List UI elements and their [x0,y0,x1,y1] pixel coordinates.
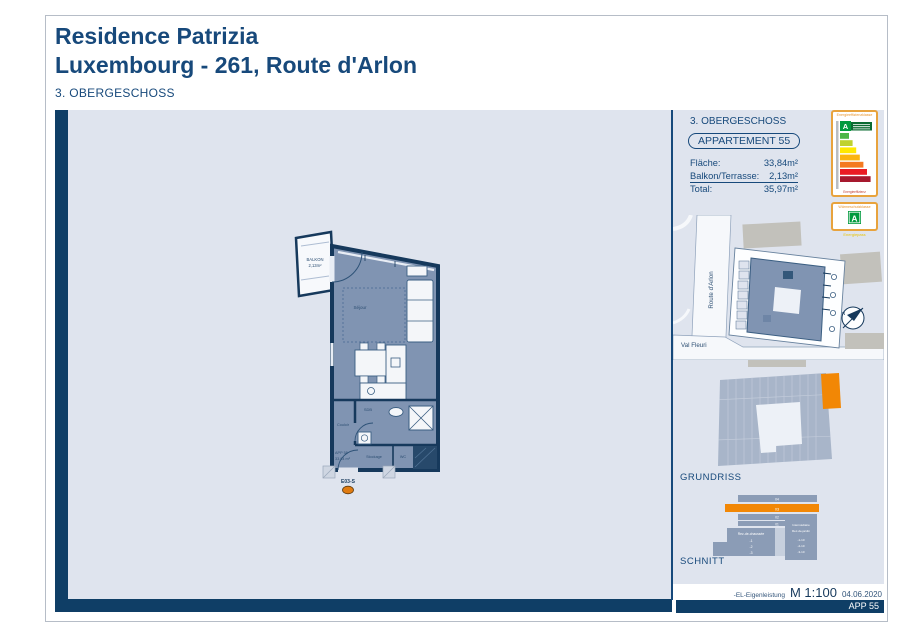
footer-bar: APP 55 [676,600,884,613]
balkon-label: BALKON [307,257,324,262]
room-label-sdb: SDB [364,407,373,412]
entrance-label: E03-S [341,479,356,485]
technical-shaft [413,446,437,469]
site-building [747,258,831,341]
sidebar-floor-label: 3. OBERGESCHOSS [690,116,786,127]
room-label-couloir: Couloir [337,423,350,427]
wall-section-mark [383,466,395,478]
energy-class-badge: A [840,121,872,131]
area-row: Fläche: 33,84m² [690,157,798,170]
street-label-vertical: Route d'Arlon [708,271,715,309]
section-right-row: -3-10 [797,550,804,554]
svg-text:A: A [843,122,849,131]
energy-scale-bars [840,133,871,182]
grundriss-label: GRUNDRISS [680,472,742,483]
area-label: Balkon/Terrasse: [690,170,759,183]
section-right-header: Rez-de-jardin [792,529,810,533]
north-label: N [842,311,845,316]
scale-label: M 1:100 [790,585,837,600]
title-line1: Residence Patrizia [55,22,655,51]
area-row: Total: 35,97m² [690,183,798,196]
site-map: Route d'Arlon Val Fleuri [673,215,884,360]
section-left-row: -2 [749,545,752,549]
section-left-header: Rez-de-chaussée [738,532,765,536]
map-edge-building [748,360,806,367]
floor-subtitle: 3. OBERGESCHOSS [55,86,175,100]
plan-sheet: Residence Patrizia Luxembourg - 261, Rou… [0,0,900,636]
area-label: Total: [690,183,712,196]
area-value: 35,97m² [764,183,798,196]
area-row: Balkon/Terrasse: 2,13m² [690,170,798,184]
energy-axis-bar [836,121,839,189]
apartment-highlight [821,373,841,409]
basin [389,408,403,417]
energy-label: Energieeffizienzklasse A Energieeffizien… [831,110,878,197]
area-value: 33,84m² [764,157,798,170]
schnitt-label: SCHNITT [680,556,725,567]
floor-number: 04 [775,498,779,502]
compass-icon: N [842,307,864,329]
section-left-row: -1 [749,539,752,543]
section-right-header: Intermédiaire [792,523,810,527]
section-right-row: -2-10 [797,544,804,548]
balcony: BALKON 2,13m² [296,232,334,296]
room-label-sejour: Séjour [353,305,367,310]
schnitt-graphic: 04 03 02 01 Rez-de-chaussée -1 -2 -3 Int… [673,488,884,560]
room-label-wc: WC [400,455,407,459]
section-core [775,528,785,556]
grundriss-graphic [673,360,884,475]
date-label: 04.06.2020 [842,590,882,599]
footer-note: -EL-Eigenleistung [734,592,785,599]
wall-section-mark [323,466,335,478]
floor-number: 02 [775,516,779,520]
street-label-bottom: Val Fleuri [681,342,707,349]
balkon-area: 2,13m² [308,263,322,268]
area-table: Fläche: 33,84m² Balkon/Terrasse: 2,13m² … [690,157,798,196]
entrance-marker-icon [343,486,354,494]
footer-app-label: APP 55 [849,601,879,611]
page-title: Residence Patrizia Luxembourg - 261, Rou… [55,22,655,80]
section-right-row: -1-10 [797,538,804,542]
energy-box1-footer: Energieeffizienz [843,190,866,194]
section-left-row: -3 [749,551,752,555]
area-label: Fläche: [690,157,721,170]
room-label-stockage: Stockage [366,455,382,459]
floor-number: 01 [775,522,779,526]
floorplan-drawing: BALKON 2,13m² Séjour [55,110,672,612]
floor-number: 03 [775,508,779,512]
area-value: 2,13m² [769,170,798,183]
shower [409,406,433,430]
section-floor-highlight [725,504,819,512]
apartment-badge: APPARTEMENT 55 [688,133,800,149]
sidebar: 3. OBERGESCHOSS APPARTEMENT 55 Fläche: 3… [673,110,884,584]
footer-row: -EL-Eigenleistung M 1:100 04.06.2020 [676,585,882,600]
title-line2: Luxembourg - 261, Route d'Arlon [55,51,655,80]
washing-machine [358,432,371,444]
